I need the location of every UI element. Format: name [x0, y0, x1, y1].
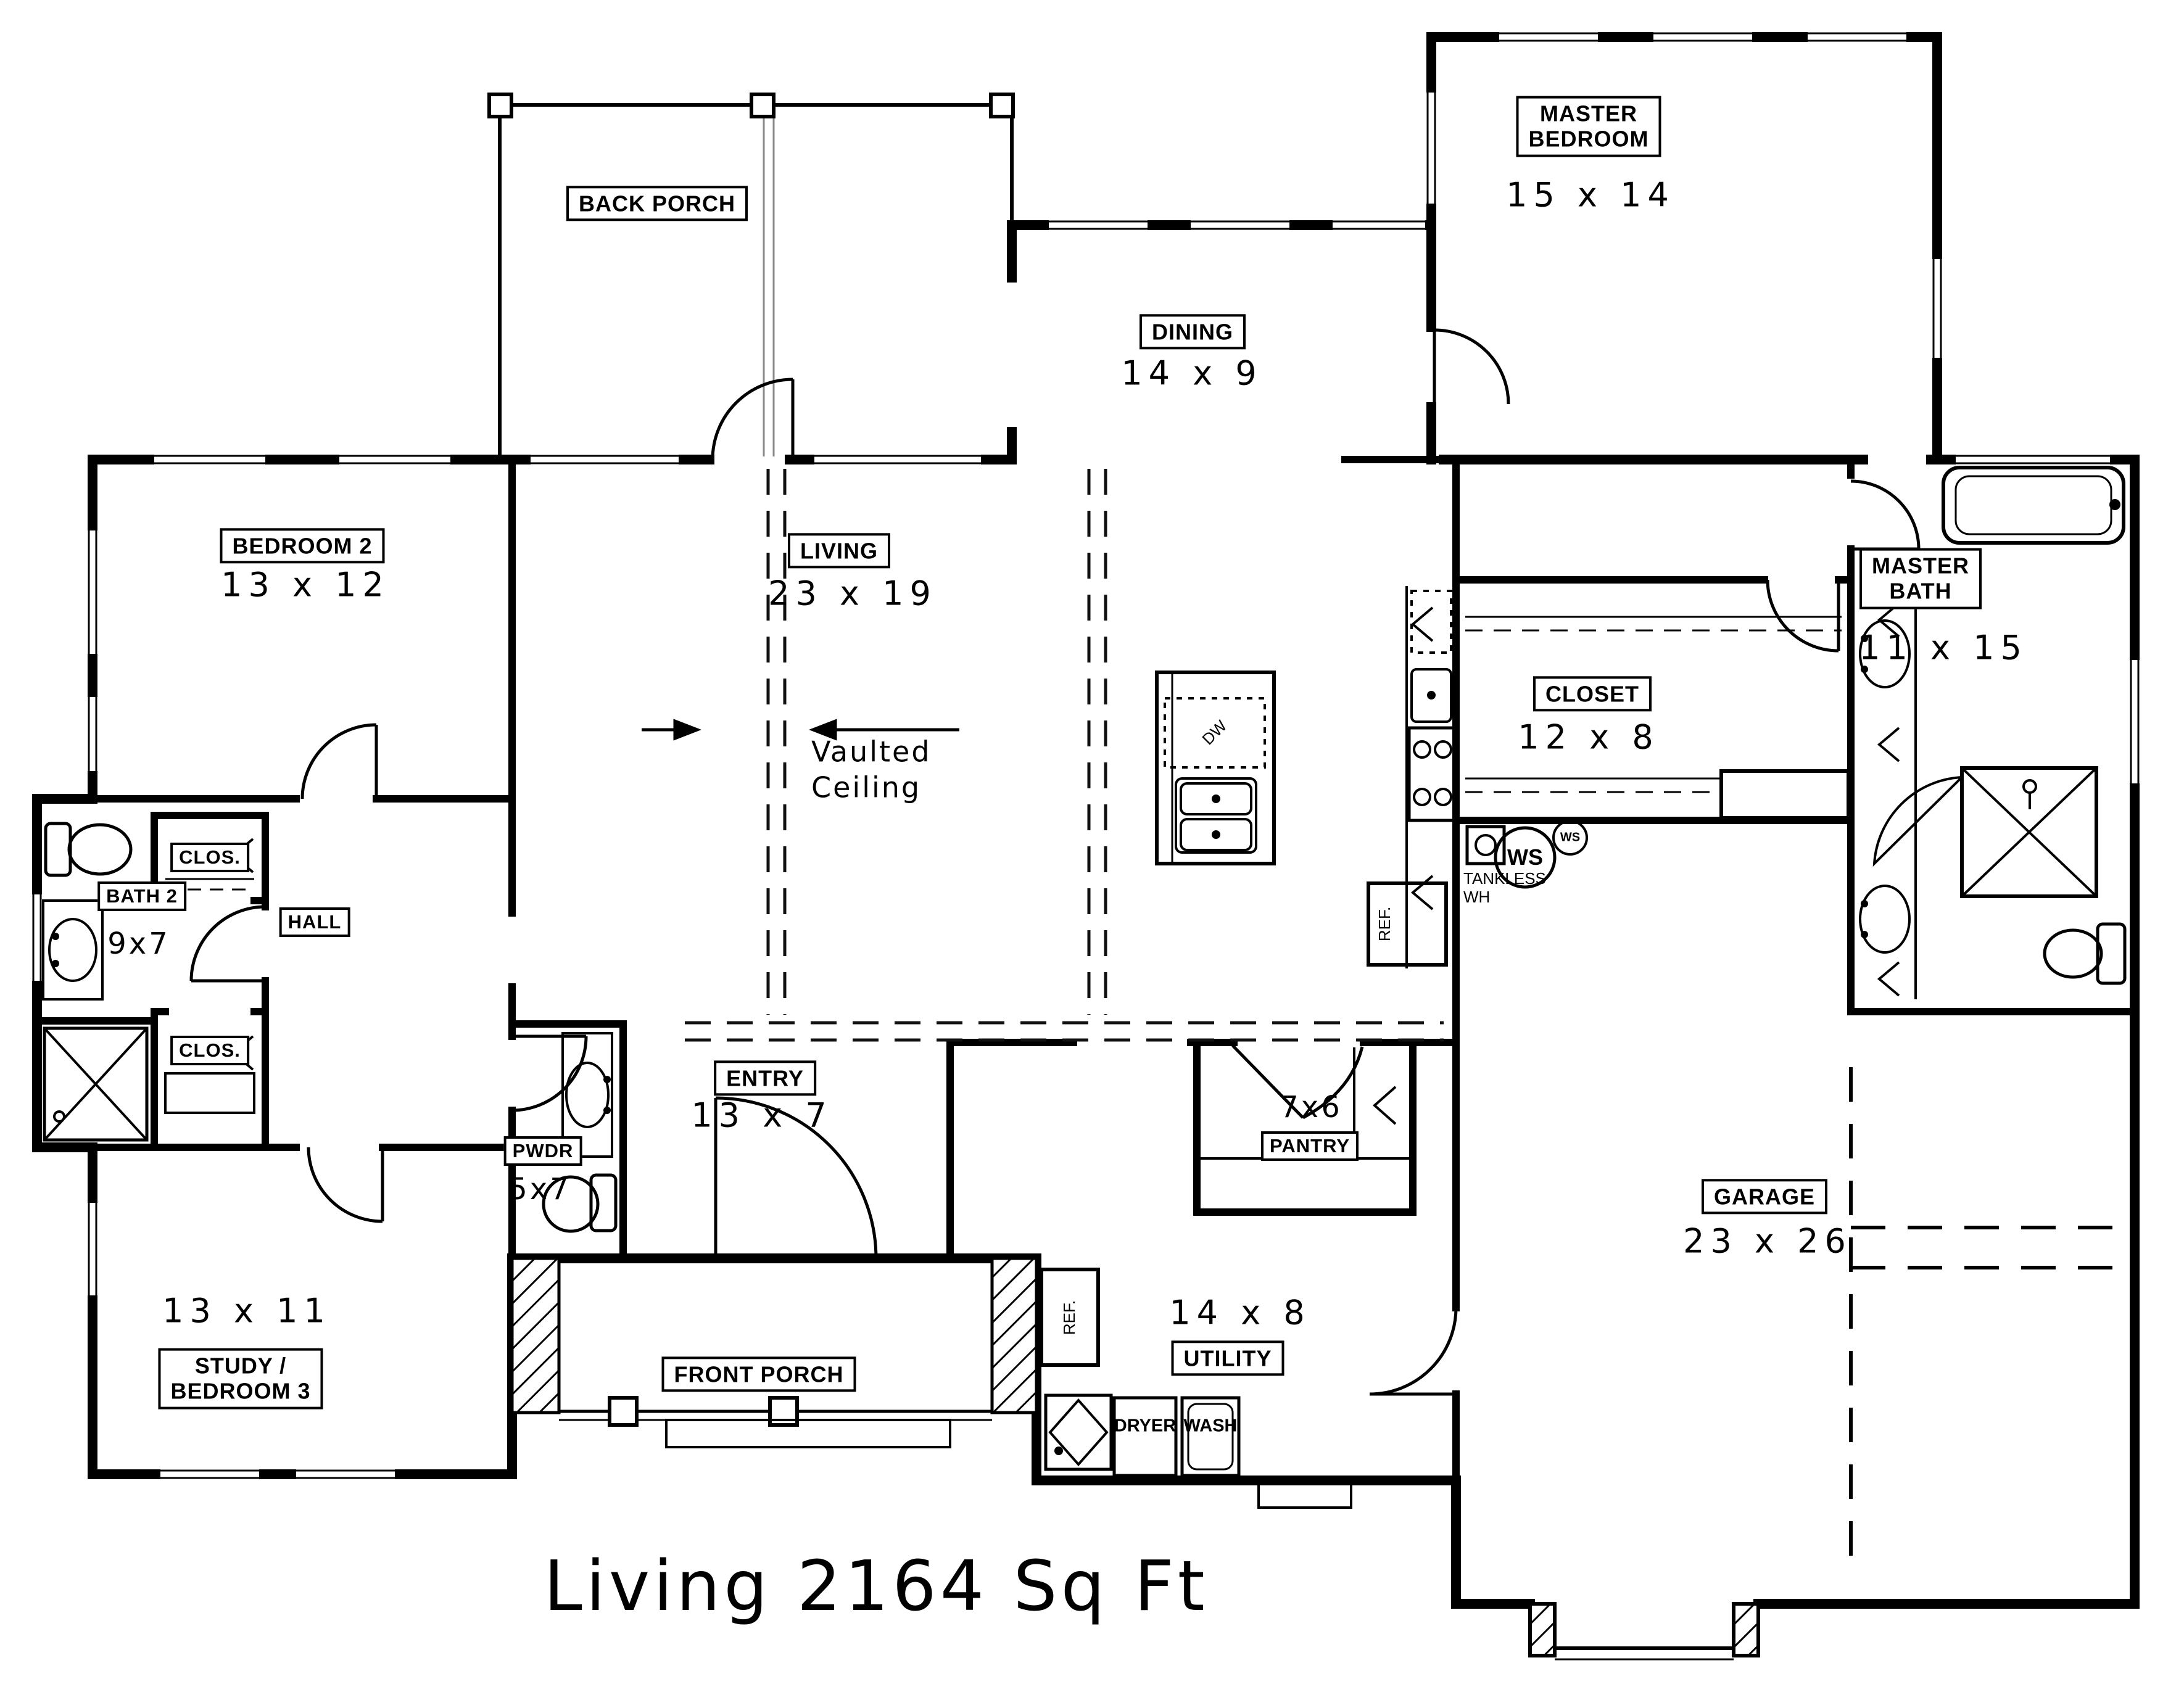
dims-pwdr: 5x7: [508, 1172, 571, 1207]
dims-dining: 14 x 9: [1121, 354, 1262, 393]
label-dryer: DRYER: [1114, 1416, 1176, 1437]
dims-living: 23 x 19: [768, 574, 937, 613]
label-master-bath: MASTER BATH: [1859, 548, 1982, 609]
note-vaulted-ceiling: Vaulted Ceiling: [811, 735, 932, 806]
dims-master-bedroom: 15 x 14: [1506, 176, 1675, 215]
floorplan-linework: [0, 0, 2184, 1684]
label-living: LIVING: [788, 533, 890, 568]
dims-master-bath: 11 x 15: [1859, 629, 2028, 667]
label-washer: WASH: [1184, 1416, 1238, 1437]
dims-closet: 12 x 8: [1518, 718, 1659, 757]
label-closet: CLOSET: [1533, 676, 1652, 711]
label-back-porch: BACK PORCH: [566, 186, 748, 221]
kitchen-fixtures: [1157, 586, 1455, 968]
misc-marks: [233, 839, 253, 1070]
label-utility: UTILITY: [1172, 1340, 1284, 1376]
label-entry: ENTRY: [714, 1060, 816, 1096]
label-tankless-wh: TANKLESS WH: [1463, 870, 1546, 907]
label-pantry: PANTRY: [1261, 1131, 1359, 1161]
dims-entry: 13 x 7: [691, 1096, 832, 1135]
floor-plan: BACK PORCH MASTER BEDROOM 15 x 14 DINING…: [0, 0, 2184, 1684]
label-bedroom2: BEDROOM 2: [220, 528, 384, 563]
label-front-porch: FRONT PORCH: [662, 1356, 856, 1392]
garage-door: [1530, 1604, 1758, 1659]
label-hall: HALL: [279, 907, 350, 937]
label-ref-kitchen: REF.: [1376, 907, 1394, 941]
label-ws-small: WS: [1560, 831, 1580, 845]
master-bath-fixtures: [1860, 468, 2125, 999]
label-ws-large: WS: [1507, 844, 1543, 870]
label-closet-top: CLOS.: [170, 843, 249, 872]
dims-pantry: 7x6: [1280, 1090, 1342, 1125]
plan-title-sqft: Living 2164 Sq Ft: [544, 1546, 1208, 1627]
dims-bath2: 9x7: [107, 927, 170, 961]
dims-study: 13 x 11: [162, 1292, 331, 1331]
interior-walls: [37, 460, 2135, 1480]
doors: [191, 330, 1919, 1394]
back-porch-structure: [489, 94, 1013, 460]
label-pwdr: PWDR: [504, 1136, 582, 1166]
dims-utility: 14 x 8: [1169, 1294, 1310, 1332]
label-bath2: BATH 2: [97, 881, 186, 911]
label-closet-bottom: CLOS.: [170, 1036, 249, 1065]
bath2-fixtures: [43, 823, 147, 1140]
garage-option-lines: [1851, 1067, 2125, 1567]
windows: [30, 30, 2141, 1481]
dims-bedroom2: 13 x 12: [221, 566, 390, 605]
label-ref-utility: REF.: [1061, 1300, 1079, 1335]
label-master-bedroom: MASTER BEDROOM: [1516, 96, 1661, 157]
dims-garage: 23 x 26: [1683, 1222, 1852, 1261]
label-garage: GARAGE: [1702, 1179, 1827, 1214]
label-dining: DINING: [1140, 314, 1246, 349]
label-study: STUDY / BEDROOM 3: [158, 1348, 323, 1410]
